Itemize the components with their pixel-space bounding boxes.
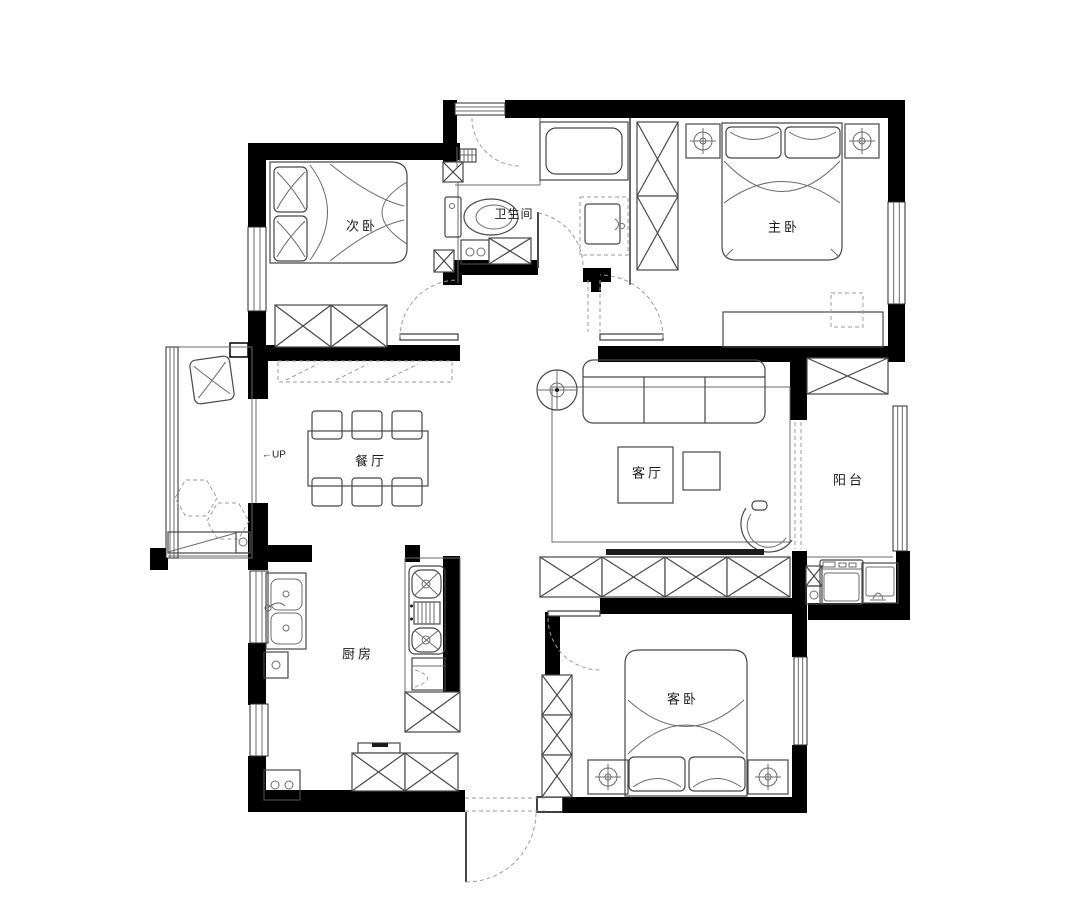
ceiling-lamp-icon xyxy=(849,128,875,154)
room-dining: 餐厅 ←UP xyxy=(262,361,452,506)
windows xyxy=(166,103,907,756)
room-label-dining: 餐厅 xyxy=(355,454,387,469)
door-leaf xyxy=(400,334,458,340)
pillow xyxy=(785,127,840,158)
floor-plan-canvas: 次卧 卫生间 xyxy=(0,0,1080,924)
wall-niche xyxy=(537,797,563,812)
door-leaf xyxy=(600,334,663,340)
window xyxy=(248,227,266,311)
sofa xyxy=(583,360,765,423)
left-bay xyxy=(168,355,250,553)
pillow xyxy=(726,127,781,158)
hexagon-pouf xyxy=(175,480,217,516)
door-swing-arc xyxy=(400,280,458,338)
shoe-cabinet xyxy=(168,532,250,553)
tv xyxy=(606,549,764,555)
room-living: 客厅 xyxy=(537,360,792,597)
door-swing-arc xyxy=(466,812,536,882)
round-side-table xyxy=(537,370,577,410)
room-label-secondary-bedroom: 次卧 xyxy=(346,219,378,234)
kitchen-sink xyxy=(265,573,306,649)
lounge-chair xyxy=(741,501,792,552)
room-guest-bedroom: 客卧 xyxy=(542,650,788,797)
room-master-bedroom: 主卧 xyxy=(637,122,883,347)
room-label-balcony: 阳台 xyxy=(833,473,865,488)
stove xyxy=(409,566,445,654)
dining-chair xyxy=(312,411,342,439)
doors xyxy=(400,118,801,882)
stairs-up-label: ←UP xyxy=(262,450,286,461)
window xyxy=(794,657,807,745)
dining-chair xyxy=(352,478,382,506)
hexagon-pouf xyxy=(207,503,249,539)
door-swing-arc xyxy=(538,213,583,268)
wall-niche xyxy=(230,343,248,357)
desk xyxy=(723,312,883,347)
vanity-basin xyxy=(585,204,620,244)
washing-machine xyxy=(820,560,863,604)
bathtub-inner xyxy=(546,128,622,174)
window xyxy=(166,347,178,558)
toilet-tank xyxy=(445,197,461,237)
room-label-kitchen: 厨房 xyxy=(342,647,374,662)
bed xyxy=(625,650,747,796)
floor-cushion xyxy=(189,355,235,404)
door-leaf xyxy=(548,611,600,616)
floor-plan: 次卧 卫生间 xyxy=(0,0,1080,924)
dining-chair xyxy=(352,411,382,439)
ceiling-lamp-icon xyxy=(595,764,621,790)
dining-chair xyxy=(312,478,342,506)
kitchen-base-cabinets xyxy=(352,743,458,791)
bathtub xyxy=(540,122,628,180)
desk-chair xyxy=(831,293,863,327)
room-label-guest-bedroom: 客卧 xyxy=(667,692,699,707)
room-secondary-bedroom: 次卧 xyxy=(270,162,463,347)
window xyxy=(893,406,907,551)
window xyxy=(250,704,268,756)
pillow xyxy=(689,757,745,791)
balcony-slider xyxy=(795,422,801,549)
oven xyxy=(412,658,445,690)
dining-chair xyxy=(392,411,422,439)
laundry-sink xyxy=(862,563,898,603)
ceiling-lamp-icon xyxy=(755,764,781,790)
ceiling-lamp-icon xyxy=(690,128,716,154)
room-label-living: 客厅 xyxy=(632,466,664,481)
room-label-bathroom: 卫生间 xyxy=(494,207,533,221)
window xyxy=(455,103,505,115)
room-label-master-bedroom: 主卧 xyxy=(768,220,800,235)
planned-cabinet xyxy=(278,361,452,382)
door-swing-arc xyxy=(472,118,520,166)
rug xyxy=(552,387,790,542)
window xyxy=(888,202,905,304)
entry-threshold xyxy=(465,798,545,811)
side-table xyxy=(683,452,720,490)
vanity-counter xyxy=(580,197,628,255)
room-balcony: 阳台 xyxy=(806,358,898,604)
room-kitchen: 厨房 xyxy=(264,558,460,800)
door-swing-arc xyxy=(600,275,663,338)
room-bathroom: 卫生间 xyxy=(445,122,628,264)
wall-fixtures xyxy=(264,652,300,800)
flush-button xyxy=(450,204,455,209)
dining-chair xyxy=(392,478,422,506)
pillow xyxy=(629,757,685,791)
